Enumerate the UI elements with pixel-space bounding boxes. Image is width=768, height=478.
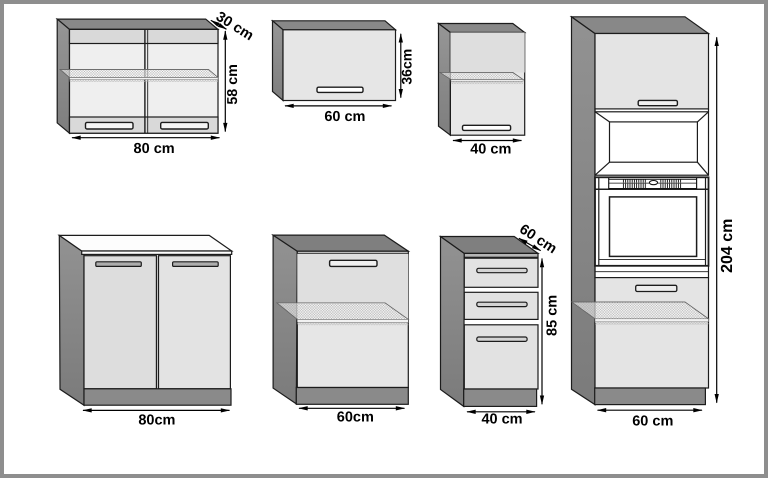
svg-text:80 cm: 80 cm xyxy=(134,141,175,157)
svg-text:36cm: 36cm xyxy=(399,49,415,85)
svg-text:60cm: 60cm xyxy=(337,409,374,425)
svg-text:60 cm: 60 cm xyxy=(632,414,673,430)
svg-text:40 cm: 40 cm xyxy=(470,141,511,157)
svg-text:85 cm: 85 cm xyxy=(544,295,560,336)
svg-text:40 cm: 40 cm xyxy=(481,412,522,428)
svg-text:204 cm: 204 cm xyxy=(719,219,736,273)
svg-text:58 cm: 58 cm xyxy=(225,64,241,105)
svg-text:60 cm: 60 cm xyxy=(324,109,365,125)
svg-text:80cm: 80cm xyxy=(138,412,175,428)
